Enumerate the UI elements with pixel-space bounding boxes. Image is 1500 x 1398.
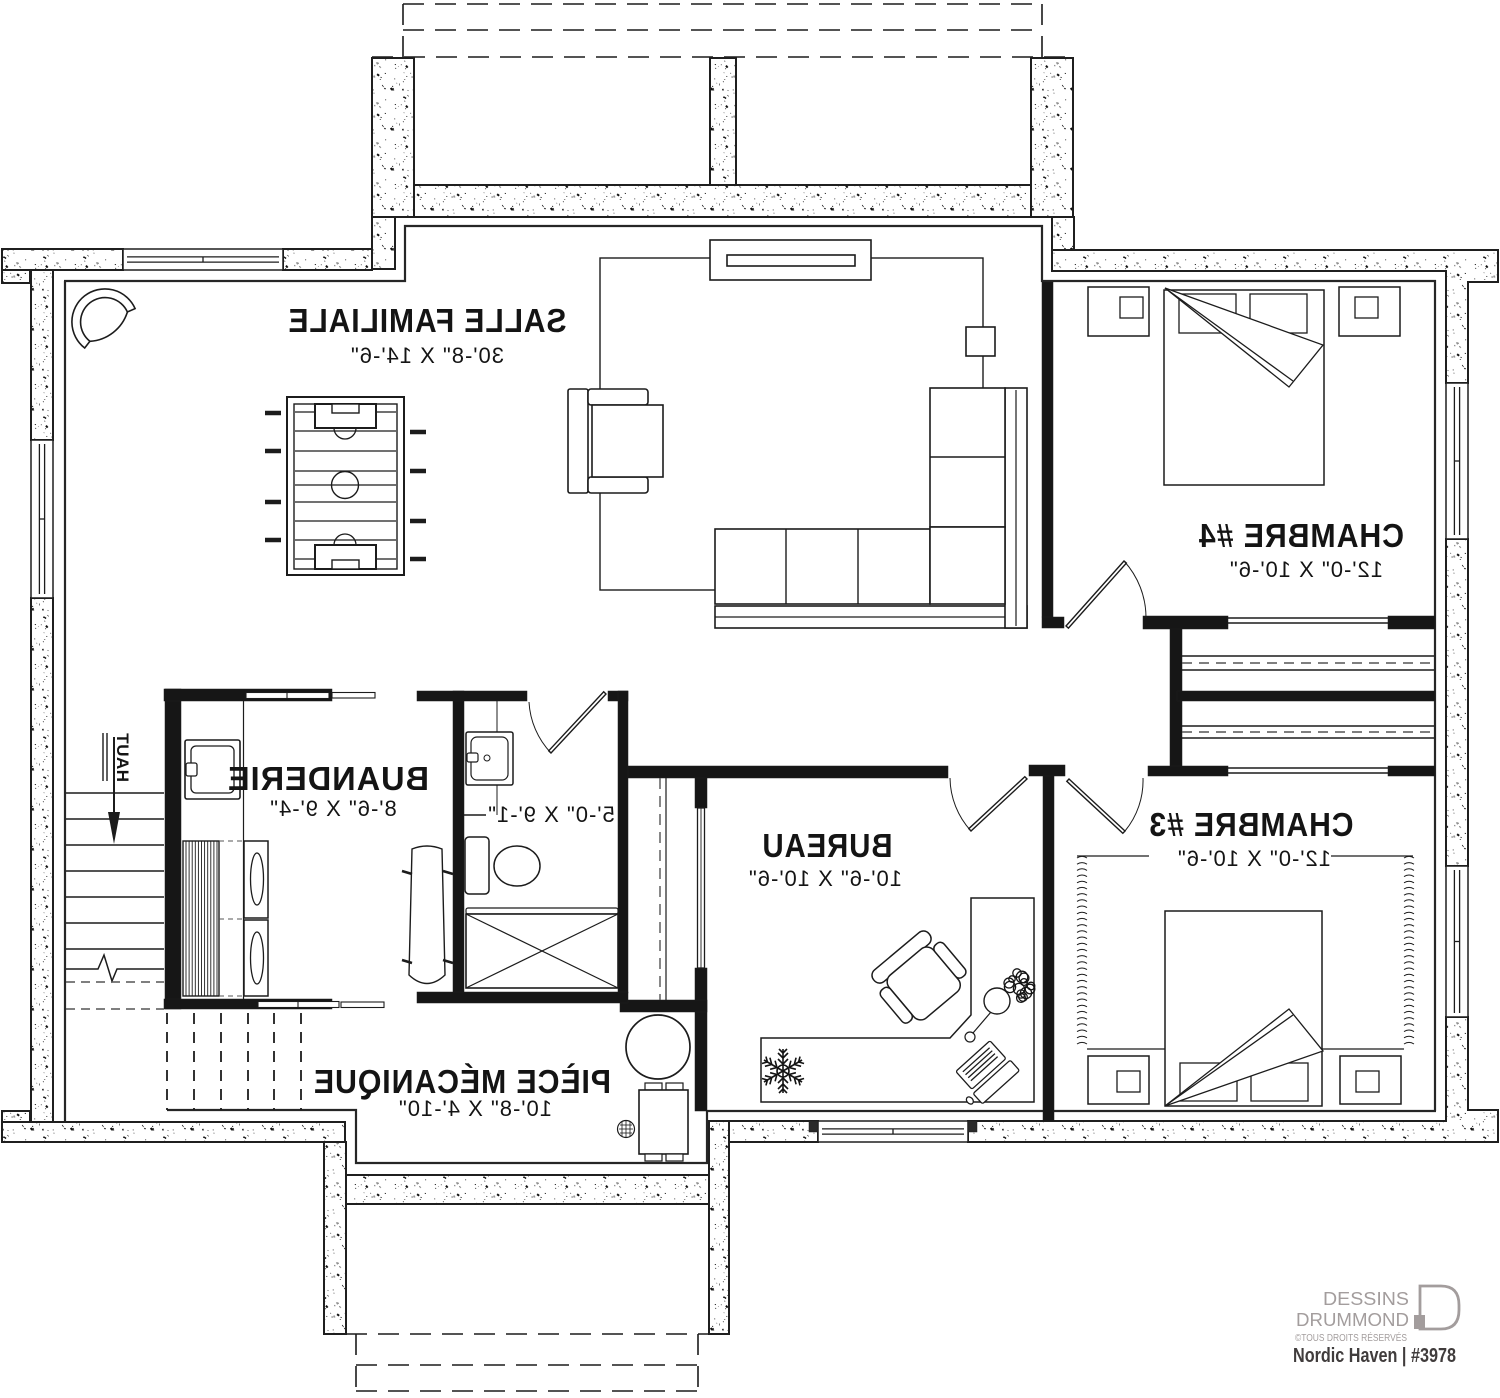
- svg-text:DESSINS: DESSINS: [1323, 1289, 1409, 1309]
- svg-text:12'-0" X 10'-6": 12'-0" X 10'-6": [1229, 557, 1383, 582]
- svg-text:HAUT: HAUT: [113, 733, 132, 782]
- svg-text:DRUMMOND: DRUMMOND: [1296, 1310, 1409, 1330]
- svg-text:30'-8" X 14'-6": 30'-8" X 14'-6": [350, 343, 504, 368]
- svg-text:SALLE FAMILIALE: SALLE FAMILIALE: [288, 302, 567, 339]
- svg-text:CHAMBRE #3: CHAMBRE #3: [1149, 806, 1354, 843]
- svg-text:10'-8" X 4'-10": 10'-8" X 4'-10": [398, 1096, 552, 1121]
- svg-text:PIÈCE MÉCANIQUE: PIÈCE MÉCANIQUE: [313, 1063, 611, 1100]
- svg-text:8'-6" X 9'-4": 8'-6" X 9'-4": [269, 796, 397, 821]
- svg-text:©TOUS DROITS RÉSERVÉS: ©TOUS DROITS RÉSERVÉS: [1295, 1331, 1407, 1344]
- svg-text:5'-0" X 9'-1": 5'-0" X 9'-1": [487, 802, 615, 827]
- svg-text:Nordic Haven | #3978: Nordic Haven | #3978: [1293, 1345, 1456, 1367]
- svg-text:CHAMBRE #4: CHAMBRE #4: [1198, 517, 1404, 554]
- svg-text:BUANDERIE: BUANDERIE: [227, 760, 429, 797]
- svg-text:BUREAU: BUREAU: [762, 827, 893, 864]
- svg-text:10'-6" X 10'-6": 10'-6" X 10'-6": [748, 866, 902, 891]
- svg-text:12'-0" X 10'-6": 12'-0" X 10'-6": [1177, 846, 1331, 871]
